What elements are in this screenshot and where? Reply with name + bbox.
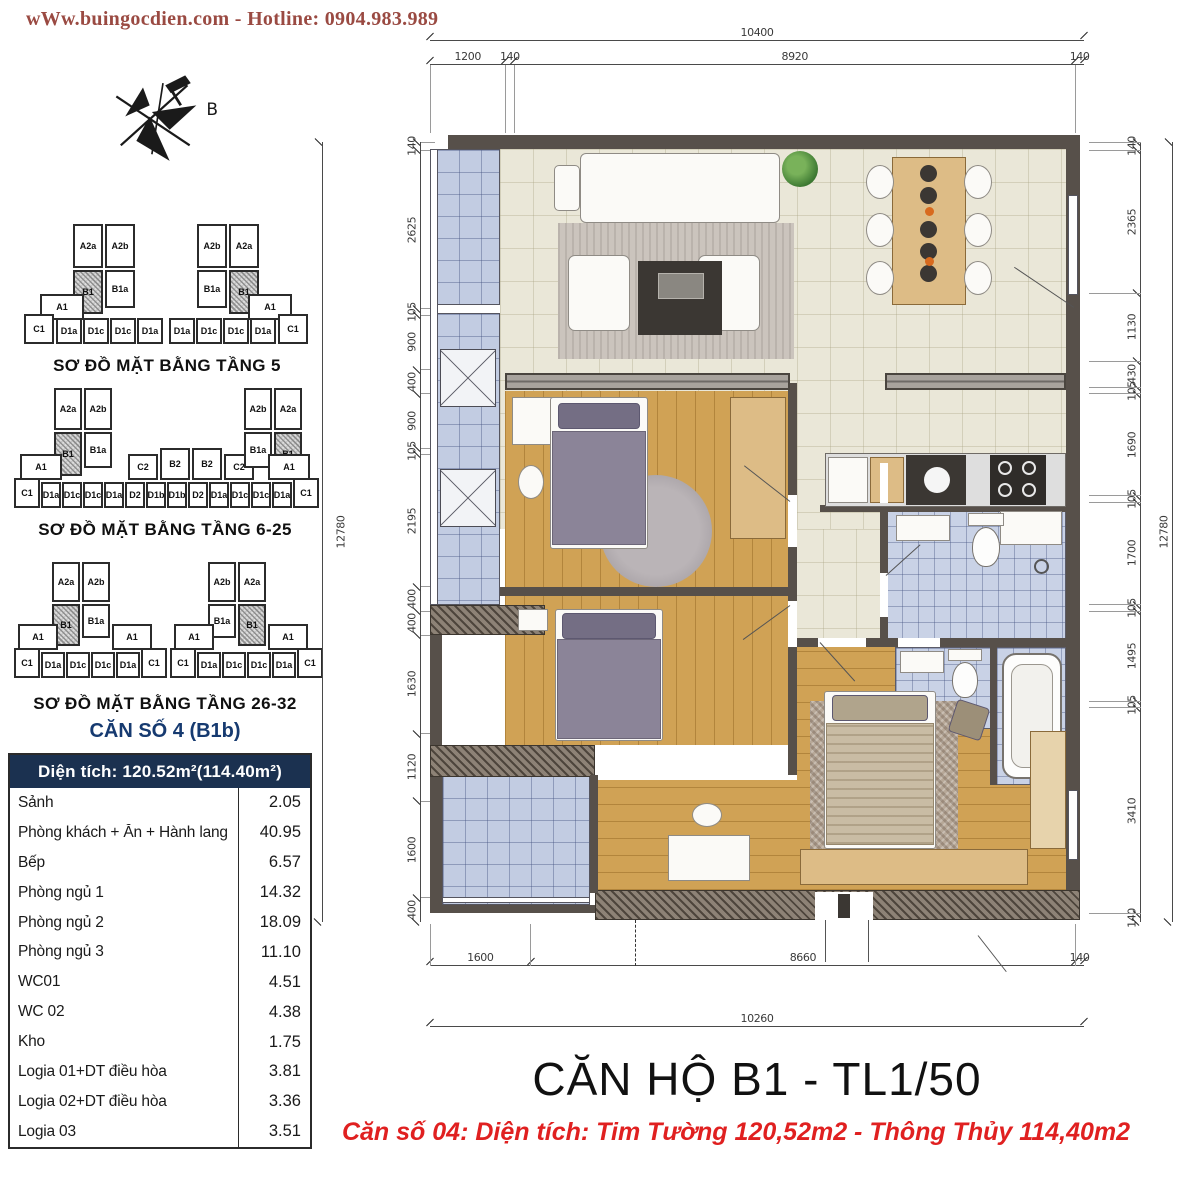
dimension-segment: 10260 — [430, 1026, 1084, 1036]
unit-block-A2a: A2a — [229, 224, 259, 268]
dimension-label: 400 — [406, 613, 419, 633]
dimension-label: 12780 — [335, 516, 348, 549]
dimension-label: 1600 — [467, 951, 493, 964]
area-table: Diện tích: 120.52m²(114.40m²) Sảnh2.05Ph… — [8, 753, 312, 1149]
table-row: Phòng ngủ 218.09 — [10, 908, 310, 938]
floor-diagram-tang-5: A2aA2bB1B1aA1C1D1aD1cD1cD1aA2bA2aB1aB1A1… — [16, 222, 316, 356]
dimension-segment: 2625 — [420, 150, 430, 308]
door-gap-bedroom1 — [788, 495, 797, 547]
room-area-value: 40.95 — [238, 818, 310, 848]
room-area-value: 4.38 — [238, 997, 310, 1027]
unit-block-D1c: D1c — [110, 318, 136, 344]
room-name: Logia 03 — [10, 1123, 238, 1141]
dimension-label: 1130 — [1126, 314, 1139, 340]
hallway-floor — [790, 529, 890, 641]
dimension-label: 2365 — [1126, 209, 1139, 235]
dimension-label: 900 — [406, 333, 419, 353]
beam-kitchen — [885, 373, 1066, 390]
casement-window-icon — [440, 349, 496, 407]
armchair-left — [568, 255, 630, 331]
room-name: Phòng ngủ 2 — [10, 914, 238, 932]
dimension-segment: 140 — [1075, 64, 1084, 74]
dim-right-segments: 1402365113043010516901051700105149510534… — [1140, 142, 1150, 922]
dimension-label: 400 — [406, 900, 419, 920]
door-gap-wc2 — [898, 638, 940, 647]
dim-top-segments: 12001408920140 — [430, 64, 1084, 74]
desk-bedroom3 — [668, 835, 750, 881]
floor-diagram-tang-26-32: A2aA2bB1B1aA1A1C1D1aD1cD1cD1aC1A2bA2aB1a… — [12, 560, 324, 686]
door-gap-kitchen — [880, 463, 888, 503]
unit-block-B2: B2 — [160, 448, 190, 480]
dimension-label: 140 — [1070, 951, 1090, 964]
entry-mark — [825, 920, 826, 962]
unit-block-D1c: D1c — [222, 652, 246, 678]
dimension-segment: 1700 — [1140, 502, 1150, 605]
dimension-segment: 140 — [1075, 965, 1084, 975]
unit-block-A2b: A2b — [244, 388, 272, 430]
unit-block-A2a: A2a — [238, 562, 266, 602]
table-row: Logia 02+DT điều hòa3.36 — [10, 1087, 310, 1117]
unit-block-A2b: A2b — [82, 562, 110, 602]
site-header: wWw.buingocdien.com - Hotline: 0904.983.… — [26, 8, 438, 31]
wardrobe-bedroom1 — [730, 397, 786, 539]
door-gap-bedroom3 — [818, 638, 866, 647]
dimension-segment: 1600 — [430, 965, 531, 975]
room-area-value: 3.81 — [238, 1057, 310, 1087]
unit-block-A2b: A2b — [208, 562, 236, 602]
dimension-label: 8660 — [790, 951, 816, 964]
dimension-segment: 1200 — [430, 64, 505, 74]
plate — [920, 265, 937, 282]
dimension-segment: 2195 — [420, 454, 430, 587]
table-row: Phòng ngủ 114.32 — [10, 878, 310, 908]
unit-block-D1c: D1c — [196, 318, 222, 344]
chair-bedroom1 — [518, 465, 544, 499]
table-row: Logia 01+DT điều hòa3.81 — [10, 1057, 310, 1087]
unit-block-A1: A1 — [112, 624, 152, 650]
dimension-label: 10400 — [741, 26, 774, 39]
floor-diagram-caption-1: SƠ ĐỒ MẶT BẰNG TẦNG 5 — [2, 356, 332, 376]
unit-block-D1c: D1c — [83, 318, 109, 344]
unit-block-A2b: A2b — [105, 224, 135, 268]
casement-window-icon — [440, 469, 496, 527]
dim-right-overall: 12780 — [1172, 142, 1182, 922]
unit-block-A1: A1 — [20, 454, 62, 480]
dimension-segment: 430 — [1140, 361, 1150, 387]
dimension-label: 1600 — [406, 836, 419, 862]
wc2-sink — [900, 651, 944, 673]
unit-block-B1: B1 — [238, 604, 266, 646]
bed3-blanket — [826, 723, 934, 845]
dimension-segment: 1130 — [1140, 293, 1150, 361]
room-area-value: 2.05 — [238, 788, 310, 818]
beam-bedroom1 — [505, 373, 790, 390]
dining-chair — [866, 165, 894, 199]
floor-diagram-tang-6-25: A2aA2bB1B1aA1C2B2B2C2A2bA2aB1aB1A1C1D1aD… — [10, 386, 320, 520]
plant-icon — [782, 151, 818, 187]
unit-block-C1: C1 — [278, 314, 308, 344]
dimension-segment: 1690 — [1140, 394, 1150, 496]
wc1-toilet-tank — [968, 513, 1004, 526]
room-name: Bếp — [10, 854, 238, 872]
unit-block-A1: A1 — [268, 454, 310, 480]
unit-block-A1: A1 — [18, 624, 58, 650]
wc2-toilet-icon — [952, 662, 978, 698]
unit-block-D1c: D1c — [251, 482, 271, 508]
unit-block-C1: C1 — [170, 648, 196, 678]
bed3-pillow — [832, 695, 928, 721]
unit-block-A1: A1 — [174, 624, 214, 650]
room-name: Logia 02+DT điều hòa — [10, 1093, 238, 1111]
decor-flower — [925, 207, 934, 216]
unit-block-B1a: B1a — [82, 604, 110, 638]
compass-graphic — [98, 72, 228, 172]
window-right-top — [1068, 195, 1078, 295]
plan-subtitle: Căn số 04: Diện tích: Tim Tường 120,52m2… — [280, 1118, 1192, 1147]
logia3-window — [442, 897, 590, 903]
bed1-blanket — [552, 431, 646, 545]
table-row: Kho1.75 — [10, 1027, 310, 1057]
unit-block-A2b: A2b — [197, 224, 227, 268]
dimension-segment: 900 — [420, 394, 430, 448]
plate — [920, 221, 937, 238]
unit-block-D1c: D1c — [83, 482, 103, 508]
unit-block-D1a: D1a — [56, 318, 82, 344]
dimension-label: 1200 — [455, 50, 481, 63]
dimension-segment: 400 — [420, 898, 430, 922]
floorplan — [430, 135, 1082, 922]
unit-block-C1: C1 — [14, 478, 40, 508]
room-area-value: 6.57 — [238, 848, 310, 878]
unit-block-A2a: A2a — [52, 562, 80, 602]
unit-block-D1a: D1a — [169, 318, 195, 344]
room-name: Logia 01+DT điều hòa — [10, 1063, 238, 1081]
unit-block-D1a: D1a — [41, 482, 61, 508]
compass-north-label: B — [206, 100, 218, 120]
unit-block-C1: C1 — [24, 314, 54, 344]
logia03-floor — [442, 775, 590, 905]
entry-mark — [868, 920, 869, 962]
unit-block-D1a: D1a — [209, 482, 229, 508]
unit-block-D1a: D1a — [104, 482, 124, 508]
burner — [998, 483, 1012, 497]
room-area-value: 18.09 — [238, 908, 310, 938]
section-dash-line — [635, 920, 636, 966]
table-row: Bếp6.57 — [10, 848, 310, 878]
bed3-dresser — [800, 849, 1028, 885]
nightstand — [518, 609, 548, 631]
dimension-label: 1690 — [1126, 432, 1139, 458]
unit-block-D1c: D1c — [66, 652, 90, 678]
entry-door-leaf — [838, 894, 850, 918]
unit-block-D1a: D1a — [272, 652, 296, 678]
chair-bedroom3 — [692, 803, 722, 827]
table-row: WC 024.38 — [10, 997, 310, 1027]
wall-bath-left — [990, 647, 997, 785]
wall-bottom-left — [430, 905, 595, 913]
table-row: Sảnh2.05 — [10, 788, 310, 818]
dimension-segment: 140 — [1140, 914, 1150, 922]
dim-bottom-segments: 16008660140 — [430, 965, 1084, 975]
sofa — [580, 153, 780, 223]
sofa-side-cushion — [554, 165, 580, 211]
dimension-segment: 900 — [420, 315, 430, 369]
dimension-label: 8920 — [782, 50, 808, 63]
unit-block-C1: C1 — [141, 648, 167, 678]
room-name: Phòng khách + Ăn + Hành lang — [10, 824, 238, 842]
north-compass-icon: B — [98, 72, 228, 172]
unit-block-C1: C1 — [293, 478, 319, 508]
unit-block-B1a: B1a — [197, 270, 227, 308]
unit-block-A1: A1 — [268, 624, 308, 650]
dimension-segment: 1600 — [420, 801, 430, 898]
dining-chair — [964, 213, 992, 247]
room-name: Kho — [10, 1033, 238, 1051]
unit-block-C1: C1 — [14, 648, 40, 678]
room-area-value: 14.32 — [238, 878, 310, 908]
unit-block-B2: B2 — [192, 448, 222, 480]
dimension-label: 900 — [406, 411, 419, 431]
unit-block-D1a: D1a — [250, 318, 276, 344]
door-gap-bedroom2 — [788, 601, 797, 647]
shower-drain-icon — [1034, 559, 1049, 574]
dimension-segment: 140 — [1140, 142, 1150, 150]
dimension-label: 3410 — [1126, 797, 1139, 823]
unit-block-A2a: A2a — [274, 388, 302, 430]
dimension-label: 105 — [406, 441, 419, 461]
burner — [1022, 461, 1036, 475]
unit-number-label: CĂN SỐ 4 (B1b) — [0, 720, 330, 743]
room-name: Phòng ngủ 1 — [10, 884, 238, 902]
dimension-segment: 3410 — [1140, 708, 1150, 914]
plate — [920, 165, 937, 182]
unit-block-D1c: D1c — [91, 652, 115, 678]
dimension-label: 1120 — [406, 754, 419, 780]
unit-block-D1c: D1c — [230, 482, 250, 508]
storage-kho — [1000, 511, 1062, 545]
dimension-label: 400 — [406, 372, 419, 392]
dimension-segment: 400 — [420, 587, 430, 611]
dim-top-overall: 10400 — [430, 40, 1084, 50]
dimension-label: 1495 — [1126, 643, 1139, 669]
logia-glazing-band — [430, 149, 438, 605]
dining-chair — [964, 261, 992, 295]
dimension-label: 2625 — [406, 216, 419, 242]
wall-corridor — [788, 383, 797, 775]
unit-block-C2: C2 — [128, 454, 158, 480]
room-area-value: 11.10 — [238, 937, 310, 967]
dimension-segment: 400 — [420, 611, 430, 635]
unit-block-D1a: D1a — [272, 482, 292, 508]
unit-block-D1c: D1c — [247, 652, 271, 678]
stove — [990, 455, 1046, 505]
dimension-segment: 10400 — [430, 40, 1084, 50]
fridge — [828, 457, 868, 503]
sink-basin — [924, 467, 950, 493]
room-name: WC 02 — [10, 1003, 238, 1021]
table-row: Logia 033.51 — [10, 1117, 310, 1147]
dimension-segment: 1495 — [1140, 611, 1150, 701]
dimension-label: 12780 — [1158, 516, 1171, 549]
page: wWw.buingocdien.com - Hotline: 0904.983.… — [0, 0, 1192, 1200]
unit-block-D1c: D1c — [62, 482, 82, 508]
burner — [1022, 483, 1036, 497]
burner — [998, 461, 1012, 475]
unit-block-D2: D2 — [188, 482, 208, 508]
dim-left-overall: 12780 — [322, 142, 332, 922]
dining-chair — [866, 213, 894, 247]
unit-block-B1a: B1a — [105, 270, 135, 308]
room-area-value: 4.51 — [238, 967, 310, 997]
wall-hatch-logia3 — [430, 745, 595, 777]
area-table-header: Diện tích: 120.52m²(114.40m²) — [10, 755, 310, 788]
coffee-table-tray — [658, 273, 704, 299]
dimension-segment: 1630 — [420, 635, 430, 733]
floor-diagram-caption-2: SƠ ĐỒ MẶT BẰNG TẦNG 6-25 — [0, 520, 330, 540]
wall-bed1-bed2 — [500, 587, 790, 596]
unit-block-D1a: D1a — [197, 652, 221, 678]
area-table-rows: Sảnh2.05Phòng khách + Ăn + Hành lang40.9… — [10, 788, 310, 1147]
dimension-label: 400 — [406, 589, 419, 609]
unit-block-D1b: D1b — [167, 482, 187, 508]
vanity-right — [1030, 731, 1066, 849]
door-gap-wc1 — [880, 573, 888, 617]
unit-block-D1b: D1b — [146, 482, 166, 508]
dimension-segment: 12780 — [322, 142, 332, 922]
table-row: Phòng khách + Ăn + Hành lang40.95 — [10, 818, 310, 848]
dimension-label: 1700 — [1126, 540, 1139, 566]
dimension-segment: 2365 — [1140, 150, 1150, 293]
plate — [920, 187, 937, 204]
unit-block-D2: D2 — [125, 482, 145, 508]
unit-block-A2a: A2a — [73, 224, 103, 268]
unit-block-C1: C1 — [297, 648, 323, 678]
dimension-label: 140 — [1126, 908, 1139, 928]
unit-block-D1a: D1a — [41, 652, 65, 678]
decor-flower — [925, 257, 934, 266]
dimension-segment: 400 — [420, 370, 430, 394]
table-row: WC014.51 — [10, 967, 310, 997]
bed1-pillow — [558, 403, 640, 429]
table-row: Phòng ngủ 311.10 — [10, 937, 310, 967]
room-name: Sảnh — [10, 794, 238, 812]
wc1-toilet-icon — [972, 527, 1000, 567]
room-area-value: 1.75 — [238, 1027, 310, 1057]
unit-block-D1a: D1a — [116, 652, 140, 678]
dining-chair — [964, 165, 992, 199]
logia01-floor — [436, 149, 500, 305]
dining-chair — [866, 261, 894, 295]
bed2-blanket — [557, 639, 661, 739]
unit-block-D1c: D1c — [223, 318, 249, 344]
bed2-pillow — [562, 613, 656, 639]
dimension-segment: 12780 — [1172, 142, 1182, 922]
unit-block-D1a: D1a — [137, 318, 163, 344]
dimension-segment: 8920 — [514, 64, 1075, 74]
room-name: Phòng ngủ 3 — [10, 943, 238, 961]
floor-diagram-caption-3: SƠ ĐỒ MẶT BẰNG TẦNG 26-32 — [0, 694, 330, 714]
wc1-sink — [896, 515, 950, 541]
unit-block-B1a: B1a — [84, 432, 112, 468]
dimension-label: 140 — [1070, 50, 1090, 63]
unit-block-A2a: A2a — [54, 388, 82, 430]
unit-block-A2b: A2b — [84, 388, 112, 430]
dimension-segment: 1120 — [420, 734, 430, 802]
room-area-value: 3.36 — [238, 1087, 310, 1117]
dimension-segment: 8660 — [531, 965, 1076, 975]
dim-bottom-overall: 10260 — [430, 1026, 1084, 1036]
plan-title: CĂN HỘ B1 - TL1/50 — [430, 1052, 1084, 1106]
dimension-label: 10260 — [741, 1012, 774, 1025]
wall-top — [448, 135, 1080, 149]
room-name: WC01 — [10, 973, 238, 991]
dim-left-segments: 1402625105900400900105219540040016301120… — [420, 142, 430, 922]
dimension-label: 1630 — [406, 671, 419, 697]
wc2-toilet-tank — [948, 649, 982, 661]
window-right-bottom — [1068, 790, 1078, 860]
dimension-label: 2195 — [406, 507, 419, 533]
wall-logia3-right — [590, 775, 598, 893]
